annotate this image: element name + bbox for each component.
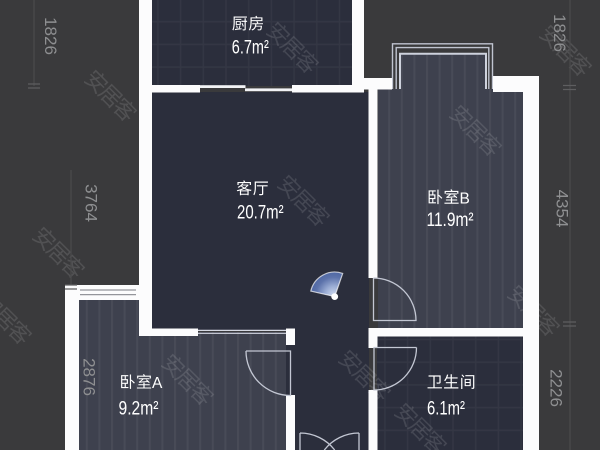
svg-text:1826: 1826 <box>41 17 60 55</box>
svg-text:B: B <box>460 190 470 207</box>
svg-text:20.7m²: 20.7m² <box>237 202 284 223</box>
svg-text:6.1m²: 6.1m² <box>427 398 465 419</box>
svg-text:1826: 1826 <box>550 14 569 52</box>
svg-text:2876: 2876 <box>80 358 99 396</box>
svg-text:A: A <box>152 375 163 392</box>
svg-text:6.7m²: 6.7m² <box>232 38 269 59</box>
svg-text:11.9m²: 11.9m² <box>427 210 474 231</box>
svg-text:2226: 2226 <box>547 369 566 407</box>
svg-text:3764: 3764 <box>82 184 101 222</box>
svg-text:4354: 4354 <box>553 190 572 228</box>
svg-text:9.2m²: 9.2m² <box>119 398 159 419</box>
